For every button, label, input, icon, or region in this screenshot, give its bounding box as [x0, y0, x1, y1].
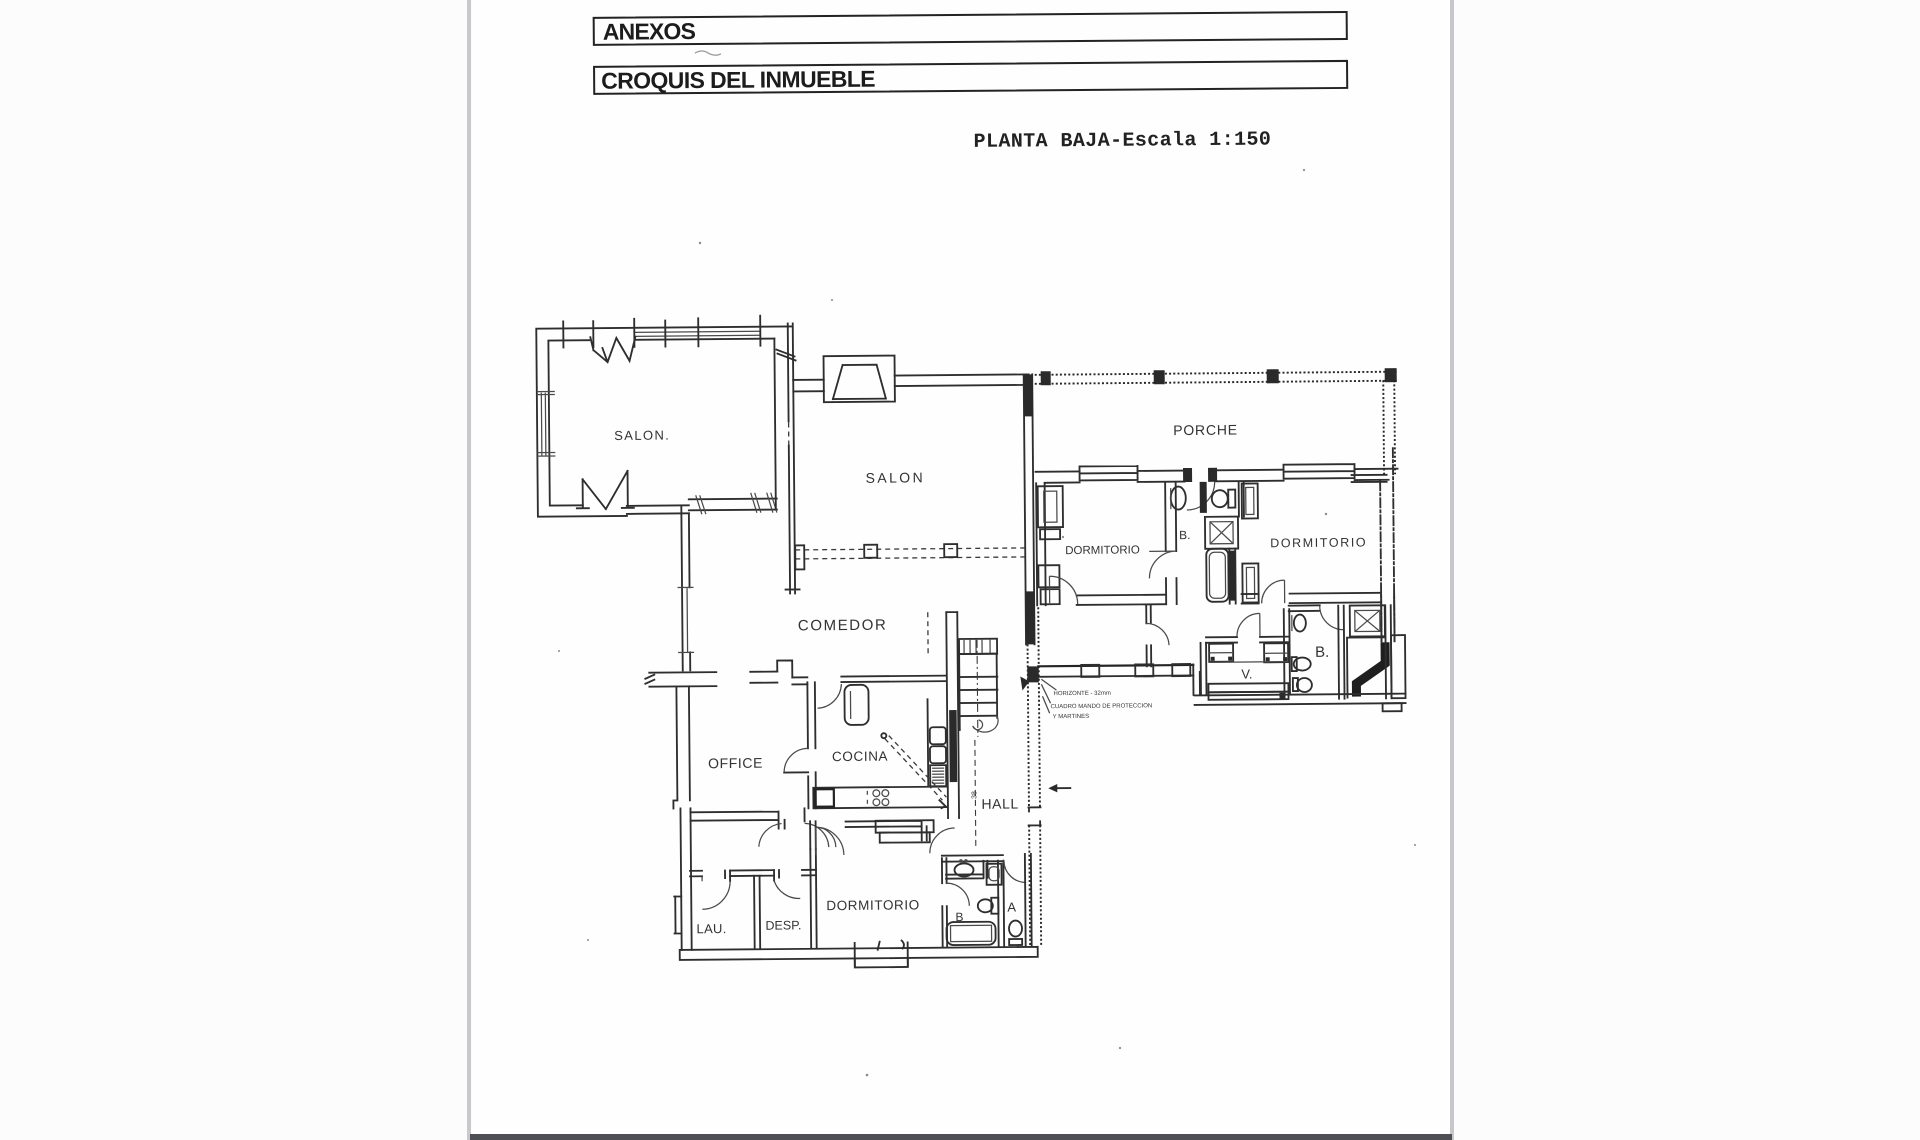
svg-text:PLANTA BAJA-Escala 1:150: PLANTA BAJA-Escala 1:150 — [974, 129, 1272, 154]
svg-text:Y MARTINES: Y MARTINES — [1053, 714, 1090, 720]
svg-text:SALON.: SALON. — [614, 428, 670, 443]
svg-text:DORMITORIO: DORMITORIO — [1065, 544, 1140, 557]
svg-text:COCINA: COCINA — [832, 749, 888, 764]
svg-text:CUADRO MANDO DE PROTECCION: CUADRO MANDO DE PROTECCION — [1051, 703, 1153, 710]
svg-text:B.: B. — [1315, 644, 1329, 661]
svg-text:ANEXOS: ANEXOS — [603, 18, 696, 45]
svg-text:OFFICE: OFFICE — [708, 755, 763, 771]
svg-text:38: 38 — [971, 791, 978, 799]
svg-text:SALON: SALON — [866, 469, 926, 486]
svg-text:PORCHE: PORCHE — [1173, 422, 1238, 439]
svg-text:DORMITORIO: DORMITORIO — [1270, 535, 1367, 550]
svg-text:B.: B. — [1179, 528, 1190, 542]
svg-text:B: B — [955, 910, 963, 924]
svg-text:COMEDOR: COMEDOR — [798, 617, 888, 635]
svg-text:DORMITORIO: DORMITORIO — [826, 897, 920, 913]
svg-text:HALL: HALL — [981, 795, 1019, 811]
svg-text:V.: V. — [1241, 666, 1252, 681]
svg-text:DESP.: DESP. — [765, 918, 801, 932]
svg-text:A: A — [1007, 900, 1016, 915]
svg-text:HORIZONTE - 32mm: HORIZONTE - 32mm — [1053, 691, 1110, 698]
svg-text:CROQUIS DEL INMUEBLE: CROQUIS DEL INMUEBLE — [601, 66, 875, 94]
svg-text:LAU.: LAU. — [696, 921, 726, 936]
